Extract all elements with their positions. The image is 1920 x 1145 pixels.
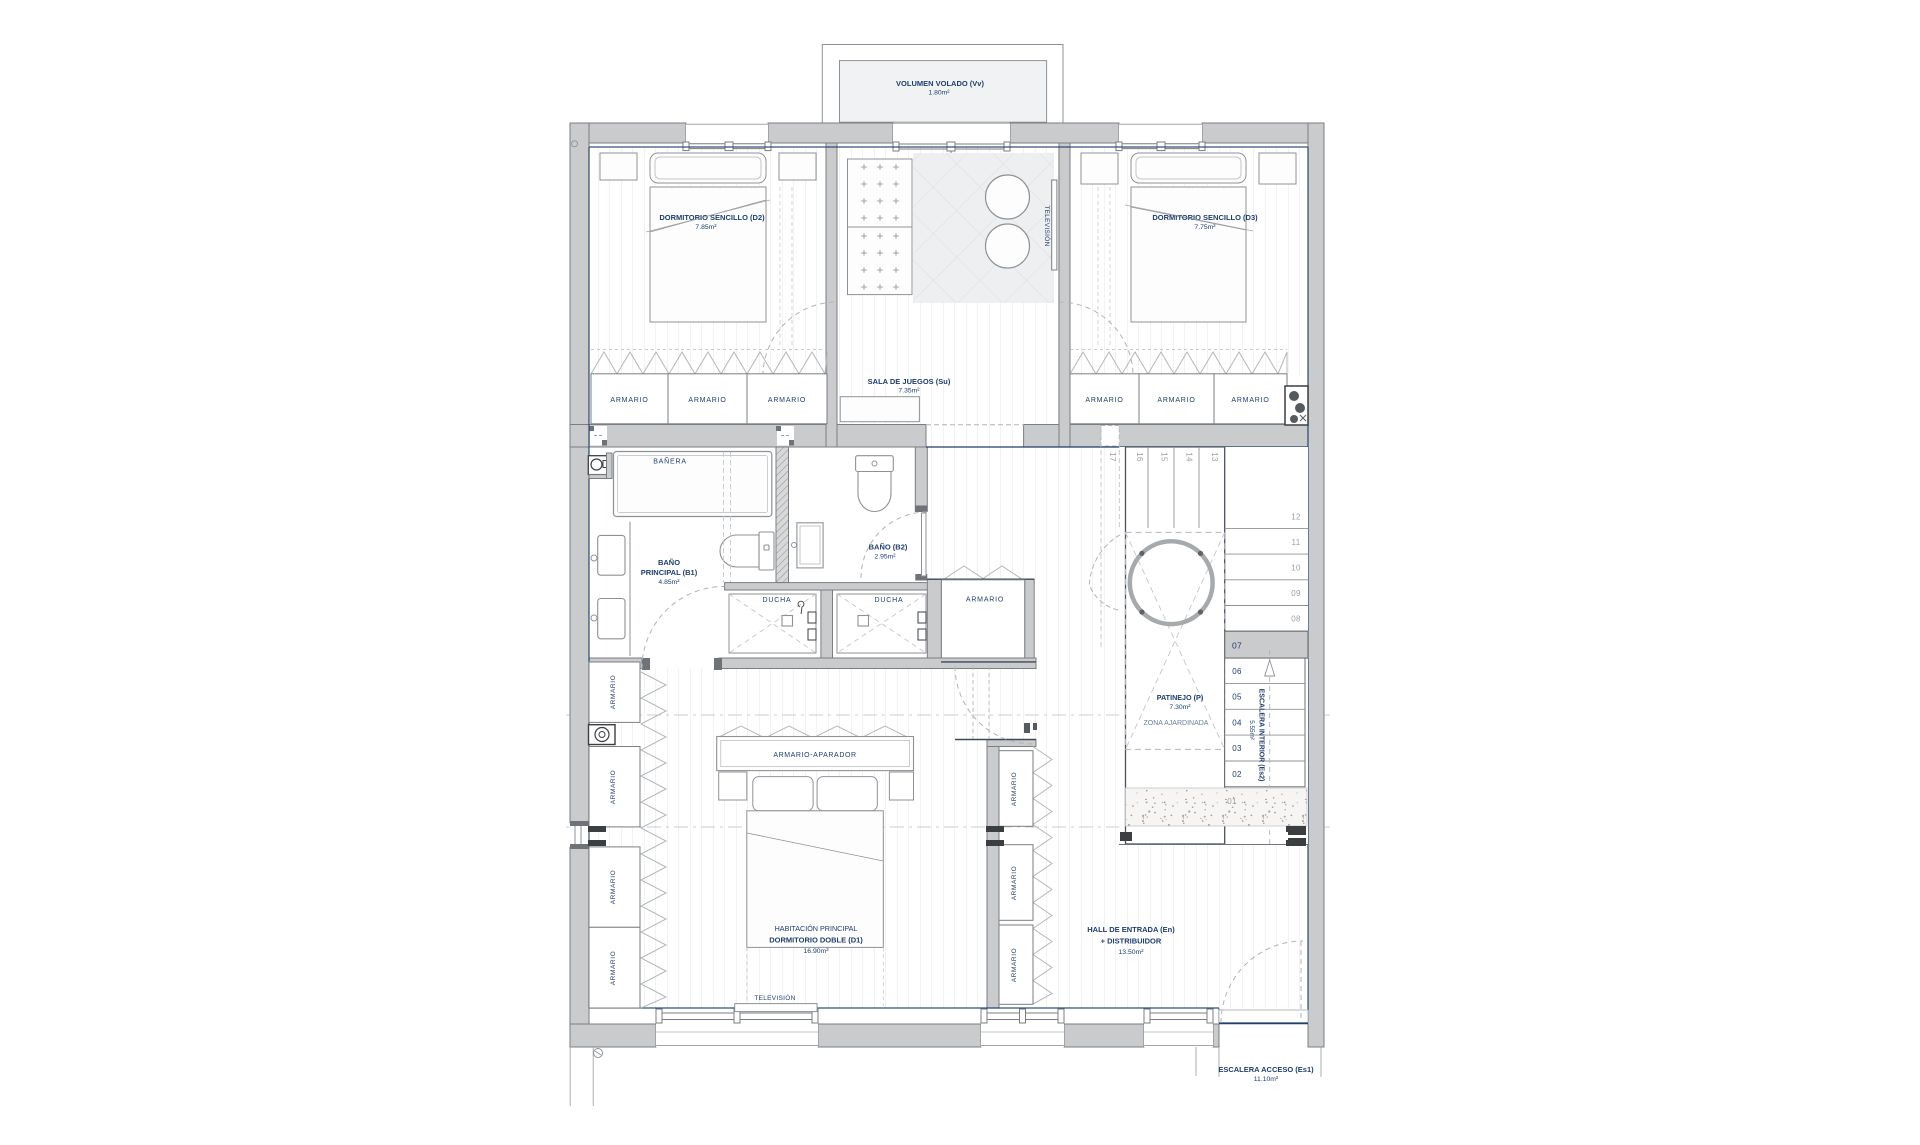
svg-text:ARMARIO: ARMARIO: [610, 951, 617, 986]
svg-text:DUCHA: DUCHA: [875, 597, 904, 604]
svg-text:12: 12: [1291, 513, 1301, 522]
svg-text:ARMARIO: ARMARIO: [610, 397, 648, 404]
svg-text:11.10m²: 11.10m²: [1254, 1076, 1279, 1083]
svg-text:ARMARIO: ARMARIO: [966, 597, 1004, 604]
svg-text:ARMARIO: ARMARIO: [1011, 772, 1018, 807]
svg-text:14: 14: [1185, 452, 1194, 462]
svg-text:07: 07: [1232, 641, 1242, 651]
svg-text:ARMARIO: ARMARIO: [610, 870, 617, 905]
svg-text:DORMITORIO DOBLE (D1): DORMITORIO DOBLE (D1): [769, 936, 863, 945]
svg-text:SALA DE JUEGOS (Su): SALA DE JUEGOS (Su): [868, 377, 951, 386]
svg-text:09: 09: [1291, 589, 1301, 598]
svg-text:ZONA AJARDINADA: ZONA AJARDINADA: [1144, 720, 1209, 727]
svg-text:13: 13: [1210, 452, 1219, 462]
svg-text:ARMARIO: ARMARIO: [1231, 397, 1269, 404]
svg-text:ARMARIO: ARMARIO: [1011, 866, 1018, 901]
svg-text:BAÑO (B2): BAÑO (B2): [869, 543, 908, 552]
svg-text:02: 02: [1232, 770, 1242, 779]
svg-text:HALL DE ENTRADA (En): HALL DE ENTRADA (En): [1087, 925, 1175, 934]
svg-text:ARMARIO: ARMARIO: [610, 675, 617, 710]
svg-text:13.50m²: 13.50m²: [1119, 949, 1145, 956]
svg-text:04: 04: [1232, 719, 1242, 728]
svg-text:15: 15: [1160, 452, 1169, 462]
svg-text:4.85m²: 4.85m²: [658, 579, 680, 586]
svg-text:+ DISTRIBUIDOR: + DISTRIBUIDOR: [1101, 937, 1162, 946]
svg-text:01: 01: [1227, 797, 1237, 806]
svg-text:TELEVISIÓN: TELEVISIÓN: [1043, 205, 1052, 246]
svg-text:PRINCIPAL (B1): PRINCIPAL (B1): [641, 568, 698, 577]
svg-text:5.55m²: 5.55m²: [1248, 720, 1255, 740]
svg-text:1.80m²: 1.80m²: [928, 90, 950, 97]
svg-text:16.90m²: 16.90m²: [804, 948, 830, 955]
svg-text:VOLUMEN VOLADO (Vv): VOLUMEN VOLADO (Vv): [896, 79, 984, 88]
svg-text:ARMARIO: ARMARIO: [610, 770, 617, 805]
svg-text:DORMITORIO SENCILLO (D3): DORMITORIO SENCILLO (D3): [1152, 213, 1258, 222]
svg-text:10: 10: [1291, 564, 1301, 573]
svg-text:ARMARIO: ARMARIO: [1085, 397, 1123, 404]
svg-text:ARMARIO: ARMARIO: [688, 397, 726, 404]
svg-text:BAÑO: BAÑO: [658, 558, 680, 567]
svg-text:BAÑERA: BAÑERA: [653, 457, 687, 466]
svg-text:DUCHA: DUCHA: [763, 597, 792, 604]
svg-text:ESCALERA INTERIOR (Es2): ESCALERA INTERIOR (Es2): [1258, 689, 1265, 782]
svg-text:HABITACIÓN PRINCIPAL: HABITACIÓN PRINCIPAL: [775, 924, 858, 933]
svg-text:08: 08: [1291, 615, 1301, 624]
svg-text:16: 16: [1135, 452, 1144, 462]
svg-text:ARMARIO: ARMARIO: [1157, 397, 1195, 404]
svg-text:7.30m²: 7.30m²: [1169, 704, 1191, 711]
svg-text:TELEVISIÓN: TELEVISIÓN: [754, 993, 795, 1002]
svg-text:ARMARIO: ARMARIO: [1011, 948, 1018, 983]
svg-text:ESCALERA ACCESO (Es1): ESCALERA ACCESO (Es1): [1218, 1065, 1314, 1074]
svg-text:7.35m²: 7.35m²: [898, 388, 920, 395]
svg-text:03: 03: [1232, 744, 1242, 753]
svg-text:7.85m²: 7.85m²: [695, 224, 717, 231]
svg-text:11: 11: [1292, 538, 1301, 547]
svg-text:ARMARIO: ARMARIO: [768, 397, 806, 404]
svg-text:7.75m²: 7.75m²: [1194, 224, 1216, 231]
svg-text:17: 17: [1108, 452, 1117, 462]
svg-text:06: 06: [1232, 667, 1242, 676]
svg-text:PATINEJO (P): PATINEJO (P): [1157, 693, 1204, 702]
svg-text:05: 05: [1232, 693, 1242, 702]
svg-text:2.95m²: 2.95m²: [874, 554, 896, 561]
svg-text:DORMITORIO SENCILLO (D2): DORMITORIO SENCILLO (D2): [659, 213, 765, 222]
svg-text:ARMARIO-APARADOR: ARMARIO-APARADOR: [773, 752, 856, 759]
